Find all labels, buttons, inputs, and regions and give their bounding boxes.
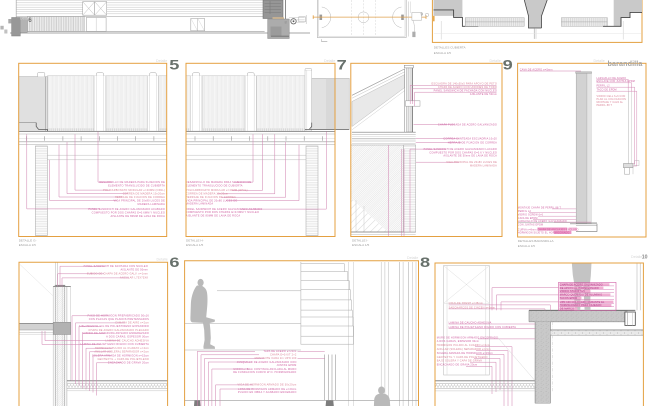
svg-text:6: 6 <box>169 255 179 270</box>
svg-text:POLICARBONATO MODULAR e=40MM (: POLICARBONATO MODULAR e=40MM (OPAL) <box>103 188 165 192</box>
svg-text:CORREA CANTEADA ESCUADRIA 10x2: CORREA CANTEADA ESCUADRIA 10x20 <box>443 137 497 140</box>
svg-text:5: 5 <box>169 58 179 73</box>
svg-text:Detalle: Detalle <box>631 255 642 259</box>
svg-text:ESCALA 1/5: ESCALA 1/5 <box>19 243 36 247</box>
svg-text:9: 9 <box>421 12 424 17</box>
svg-text:POLICARBONATO MODULAR e=40MM (: POLICARBONATO MODULAR e=40MM (OPAL) <box>186 188 248 192</box>
svg-text:DETALLE H-: DETALLE H- <box>186 238 204 242</box>
svg-text:PANEL SANDWICH DE ACERO GALVAN: PANEL SANDWICH DE ACERO GALVANIZADO ACAB… <box>88 207 165 211</box>
svg-text:VIGA PRINCIPAL DE 20x80 LUCES: VIGA PRINCIPAL DE 20x80 LUCES DE <box>113 199 165 203</box>
svg-text:6: 6 <box>28 17 32 24</box>
svg-text:AISLANTE DE 50mm DE LANA DE RO: AISLANTE DE 50mm DE LANA DE ROCA <box>443 155 497 158</box>
svg-text:COMPUESTO POR DOS CHAPAS E=0.6: COMPUESTO POR DOS CHAPAS E=0.6MM Y NUCLE… <box>92 210 165 214</box>
svg-text:ESCALA 1/5: ESCALA 1/5 <box>434 51 451 55</box>
svg-text:MADERA LAMINADA: MADERA LAMINADA <box>186 202 214 206</box>
svg-text:JUNTAS EPDM: JUNTAS EPDM <box>277 363 297 367</box>
svg-text:VIGA PRINCIPAL DE 20x80 LUCES: VIGA PRINCIPAL DE 20x80 LUCES DE <box>186 198 238 202</box>
svg-text:AISLANTE DE 80MM DE LANA DE RO: AISLANTE DE 80MM DE LANA DE ROCA <box>186 214 241 218</box>
svg-text:CHAPA PLEGADA DE ACERO GALVANI: CHAPA PLEGADA DE ACERO GALVANIZADO <box>438 123 497 126</box>
svg-text:MADERA LAMINADA: MADERA LAMINADA <box>470 164 497 167</box>
svg-text:CON JUNTAS EPDM: CON JUNTAS EPDM <box>518 223 543 226</box>
svg-text:PANEL SANDWICH DE ACERO GALVAN: PANEL SANDWICH DE ACERO GALVANIZADO ACAB… <box>186 207 263 211</box>
svg-text:HORMIGON SUJETO EL HORMIGONADO: HORMIGON SUJETO EL HORMIGONADO <box>518 232 570 235</box>
svg-text:DESARROLLO DE MADERA PARA SUJE: DESARROLLO DE MADERA PARA SUJECION DE <box>99 180 165 184</box>
svg-text:DETALLE G-: DETALLE G- <box>19 238 37 242</box>
svg-text:CORREA DE MADERA 10x20cm: CORREA DE MADERA 10x20cm <box>186 192 228 196</box>
svg-text:TAPA DE ACERO e=2mm: TAPA DE ACERO e=2mm <box>263 349 296 353</box>
svg-text:DETALLES BARANDILLA: DETALLES BARANDILLA <box>518 239 555 243</box>
svg-text:7: 7 <box>337 58 347 73</box>
svg-text:barandilla: barandilla <box>608 59 644 68</box>
svg-text:DETALLE I-: DETALLE I- <box>352 238 368 242</box>
svg-text:9: 9 <box>503 58 513 73</box>
svg-text:Detalle: Detalle <box>594 59 605 63</box>
svg-text:DE MARCO: DE MARCO <box>560 308 574 311</box>
svg-text:ESCALA 1/5: ESCALA 1/5 <box>518 244 535 248</box>
svg-text:ESCALA 1/5: ESCALA 1/5 <box>186 243 203 247</box>
svg-text:ELEMENTO TRANSLUCIDO DE CUBIER: ELEMENTO TRANSLUCIDO DE CUBIERTA <box>108 184 165 188</box>
svg-text:10: 10 <box>642 255 648 261</box>
svg-text:AISLANTE DE 80MM DE LANA DE RO: AISLANTE DE 80MM DE LANA DE ROCA <box>110 214 165 218</box>
svg-text:A DOS CARAS, ESPESOR 30cm: A DOS CARAS, ESPESOR 30cm <box>437 340 479 343</box>
svg-text:MADERA LAMINADA: MADERA LAMINADA <box>138 202 166 206</box>
svg-text:AISLANTE DE 50mm: AISLANTE DE 50mm <box>120 267 148 271</box>
svg-text:HERRAJE DE FIJACION DE CORREA: HERRAJE DE FIJACION DE CORREA <box>186 195 236 199</box>
svg-text:CORREA DE MADERA 10x20cm: CORREA DE MADERA 10x20cm <box>123 192 165 196</box>
svg-text:CON PLACAS QUE PLANOS PRETENSA: CON PLACAS QUE PLANOS PRETENSADOS <box>89 317 149 321</box>
svg-text:AISLANTE DE 50mm: AISLANTE DE 50mm <box>470 93 497 96</box>
svg-text:ESCALA 1/5: ESCALA 1/5 <box>352 243 369 247</box>
svg-text:Detalle: Detalle <box>157 258 168 262</box>
svg-text:CHAPA E=0.6/T 2+2: CHAPA E=0.6/T 2+2 <box>270 353 297 357</box>
svg-text:TACOS EPDM: TACOS EPDM <box>560 297 577 300</box>
svg-text:Detalle: Detalle <box>407 256 418 260</box>
svg-text:Detalle: Detalle <box>324 59 335 63</box>
svg-text:GEOTEXTIL + CAPA DE POLIETILEN: GEOTEXTIL + CAPA DE POLIETILENO <box>97 357 149 361</box>
svg-text:A DOS CARAS, ESPESOR 30cm: A DOS CARAS, ESPESOR 30cm <box>106 335 149 339</box>
svg-text:ELEMENTO TRANSLUCIDO DE CUBIER: ELEMENTO TRANSLUCIDO DE CUBIERTA <box>186 183 243 187</box>
svg-text:8: 8 <box>420 255 430 270</box>
svg-text:COMPUESTO POR DOS CHAPAS E=0.6: COMPUESTO POR DOS CHAPAS E=0.6MM Y NUCLE… <box>186 210 259 214</box>
svg-text:Detalle: Detalle <box>490 59 501 63</box>
svg-text:HERRAJE DE FIJACION DE CORREA: HERRAJE DE FIJACION DE CORREA <box>448 141 497 144</box>
svg-text:Detalle: Detalle <box>156 59 167 63</box>
svg-text:CHAPA DE ACERO GALVANIZADO PLE: CHAPA DE ACERO GALVANIZADO PLEGADO <box>88 328 149 332</box>
svg-text:PERFIL 88 T: PERFIL 88 T <box>597 104 613 107</box>
svg-text:DESARROLLO DE MADERA PARA SUJE: DESARROLLO DE MADERA PARA SUJECION DE <box>186 180 252 184</box>
svg-text:HERRAJE DE FIJACION DE CORREA: HERRAJE DE FIJACION DE CORREA <box>115 195 165 199</box>
svg-text:DE FUNDACION CURVO W O. HORMIG: DE FUNDACION CURVO W O. HORMIGONADO <box>233 370 296 374</box>
svg-text:DETALLES CUBIERTA: DETALLES CUBIERTA <box>434 46 467 50</box>
svg-text:PULIDO EN OBRA Y ACABADO ENCER: PULIDO EN OBRA Y ACABADO ENCERADO <box>238 390 297 394</box>
